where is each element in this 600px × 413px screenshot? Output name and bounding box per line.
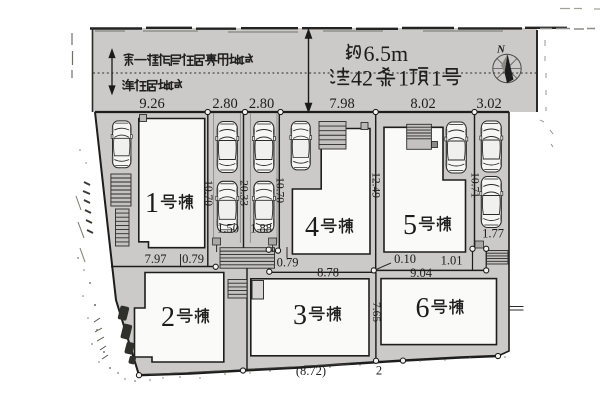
svg-text:7.97: 7.97 — [145, 252, 167, 266]
svg-text:1.01: 1.01 — [441, 254, 463, 268]
svg-text:42: 42 — [351, 66, 373, 91]
svg-text:2.80: 2.80 — [212, 96, 237, 112]
svg-text:(8.72): (8.72) — [296, 364, 326, 378]
svg-text:3: 3 — [293, 300, 307, 331]
svg-text:8.78: 8.78 — [317, 266, 339, 280]
svg-text:1: 1 — [398, 66, 409, 91]
svg-text:12.49: 12.49 — [370, 172, 382, 198]
svg-text:2: 2 — [161, 302, 175, 333]
svg-text:0.79: 0.79 — [277, 256, 299, 270]
svg-text:9.04: 9.04 — [410, 266, 433, 280]
svg-text:0.79: 0.79 — [182, 252, 204, 266]
svg-text:5: 5 — [403, 210, 417, 241]
svg-text:6: 6 — [416, 293, 430, 324]
svg-text:20.33: 20.33 — [238, 180, 250, 206]
svg-text:1.77: 1.77 — [482, 227, 504, 241]
svg-text:0.10: 0.10 — [394, 252, 416, 266]
svg-text:1.88: 1.88 — [250, 222, 272, 236]
svg-text:6.5m: 6.5m — [364, 41, 409, 66]
svg-text:10.71: 10.71 — [469, 172, 481, 198]
svg-text:10.70: 10.70 — [202, 180, 214, 206]
svg-text:1: 1 — [431, 66, 442, 91]
svg-text:1: 1 — [145, 188, 159, 219]
svg-text:1.50: 1.50 — [217, 222, 239, 236]
svg-text:2.80: 2.80 — [249, 96, 274, 112]
svg-text:7.98: 7.98 — [329, 96, 354, 112]
svg-text:8.02: 8.02 — [410, 96, 435, 112]
svg-text:N: N — [496, 44, 506, 56]
svg-text:9.26: 9.26 — [139, 96, 164, 112]
svg-text:4: 4 — [305, 212, 319, 243]
svg-text:7.65: 7.65 — [370, 302, 382, 322]
svg-text:3.02: 3.02 — [476, 96, 501, 112]
svg-text:2: 2 — [376, 364, 382, 378]
svg-text:10.70: 10.70 — [273, 177, 285, 203]
